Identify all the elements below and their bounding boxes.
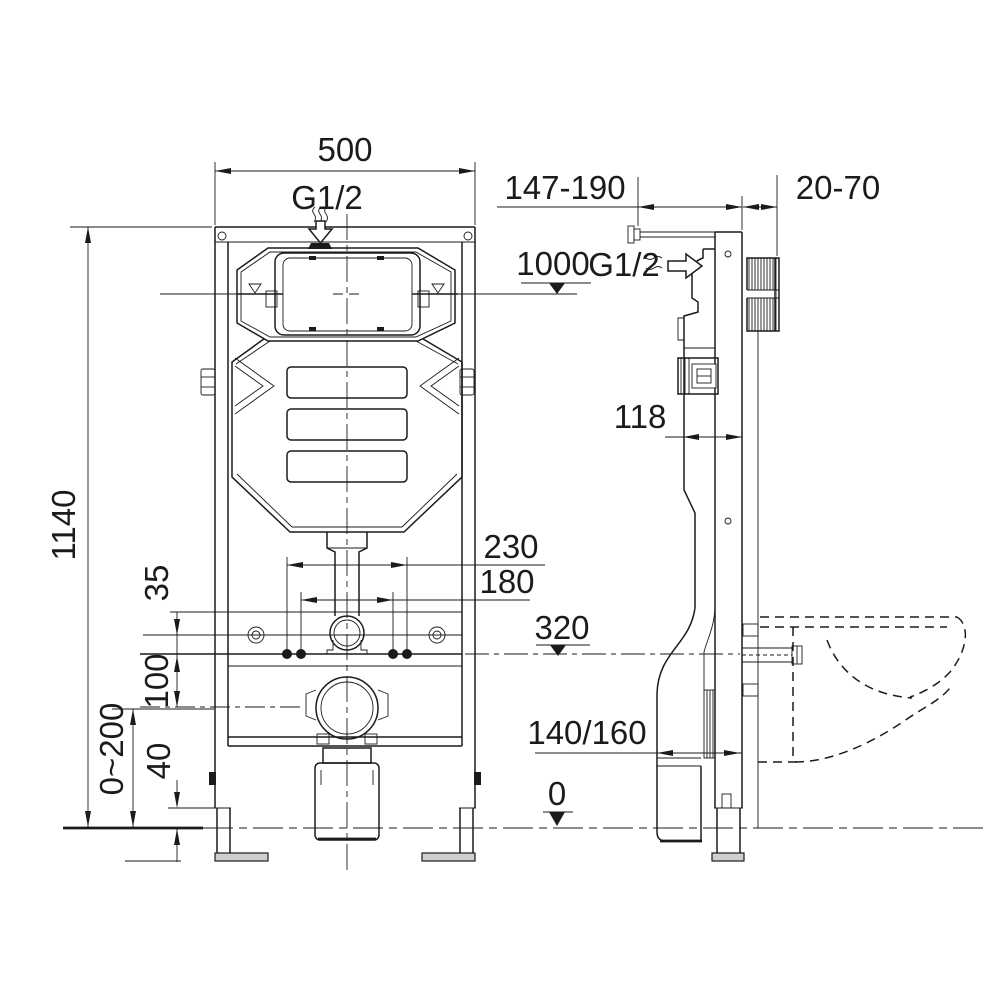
dim-1000-label: 1000 bbox=[516, 245, 589, 282]
dim-20-70-label: 20-70 bbox=[796, 169, 880, 206]
access-panel bbox=[237, 248, 458, 341]
dim-118: 118 bbox=[614, 398, 742, 440]
legs-front bbox=[209, 772, 481, 861]
toilet-bowl-dashed bbox=[758, 617, 965, 762]
drain-elbow bbox=[657, 608, 715, 841]
dim-320-label: 320 bbox=[534, 609, 589, 646]
technical-drawing-page: 500 G1/2 1140 147-190 20-70 bbox=[0, 0, 1000, 1000]
push-rod bbox=[628, 226, 715, 243]
inlet-front-label: G1/2 bbox=[291, 179, 363, 216]
actuator-plate bbox=[746, 258, 779, 331]
dim-147-190: 147-190 bbox=[497, 169, 742, 230]
dim-0-200-label: 0~200 bbox=[93, 703, 130, 796]
dim-230-180: 230 180 bbox=[287, 528, 545, 650]
dim-180-label: 180 bbox=[479, 563, 534, 600]
dim-230-label: 230 bbox=[483, 528, 538, 565]
dim-0: 0 bbox=[543, 775, 573, 826]
front-view bbox=[140, 207, 481, 872]
dim-0-label: 0 bbox=[548, 775, 566, 812]
rail-side bbox=[712, 232, 744, 861]
dim-500-label: 500 bbox=[317, 131, 372, 168]
dim-40-label: 40 bbox=[140, 743, 177, 780]
dim-147-190-label: 147-190 bbox=[504, 169, 625, 206]
dim-g12-front: G1/2 bbox=[291, 179, 363, 216]
dim-320: 320 bbox=[465, 609, 740, 656]
dim-40: 40 bbox=[140, 743, 214, 862]
side-view bbox=[628, 226, 965, 861]
dim-1140-label: 1140 bbox=[45, 490, 82, 561]
dim-118-label: 118 bbox=[614, 398, 667, 435]
inlet-side-label: G1/2 bbox=[588, 246, 660, 283]
dim-20-70: 20-70 bbox=[743, 169, 880, 256]
dim-100-label: 100 bbox=[138, 653, 175, 708]
installation-frame-drawing: 500 G1/2 1140 147-190 20-70 bbox=[0, 0, 1000, 1000]
floor-line bbox=[63, 828, 985, 861]
dim-140-160-label: 140/160 bbox=[527, 714, 646, 751]
dim-35-100: 35 100 bbox=[138, 565, 300, 709]
dim-35-label: 35 bbox=[138, 565, 175, 602]
